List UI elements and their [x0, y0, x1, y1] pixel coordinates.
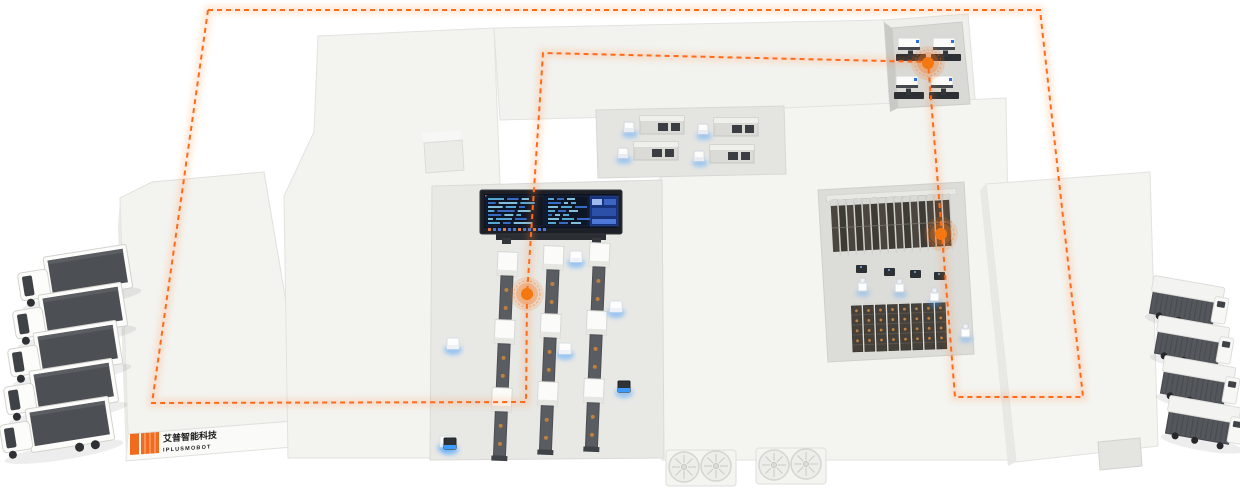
rooftop-unit-body [424, 140, 464, 173]
route-node-production-line [510, 277, 544, 311]
pallet [910, 270, 921, 278]
vent-fan-icon [759, 450, 789, 480]
left-building-roof [120, 172, 306, 434]
right-building-dock-notch [1098, 438, 1142, 470]
screen-table-mid [546, 196, 590, 226]
screen-kpi-right [590, 196, 618, 226]
pallet [856, 265, 867, 273]
factory-scene: 艾普智能科技 IPLUSMOBOT [0, 0, 1240, 488]
route-node-storage-rack [924, 217, 958, 251]
pallet [884, 268, 895, 276]
dashboard-screen [480, 190, 622, 244]
factory-illustration: 艾普智能科技 IPLUSMOBOT [0, 0, 1240, 488]
vent-fan-icon [669, 452, 699, 482]
agv-robot [567, 251, 585, 268]
logo-mark-icon [130, 433, 139, 455]
route-node-machining-cell [911, 46, 945, 80]
corridor-floor [596, 106, 786, 178]
agv-robot [444, 338, 462, 355]
vent-fan-icon [701, 451, 731, 481]
production-dashboard-screen [480, 190, 622, 244]
agv-robot [607, 301, 625, 318]
main-building-top-band [494, 20, 890, 120]
agv-robot-dark [615, 381, 633, 398]
vent-fan-icon [791, 449, 821, 479]
agv-robot [556, 343, 574, 360]
agv-robot-dark [441, 438, 459, 455]
